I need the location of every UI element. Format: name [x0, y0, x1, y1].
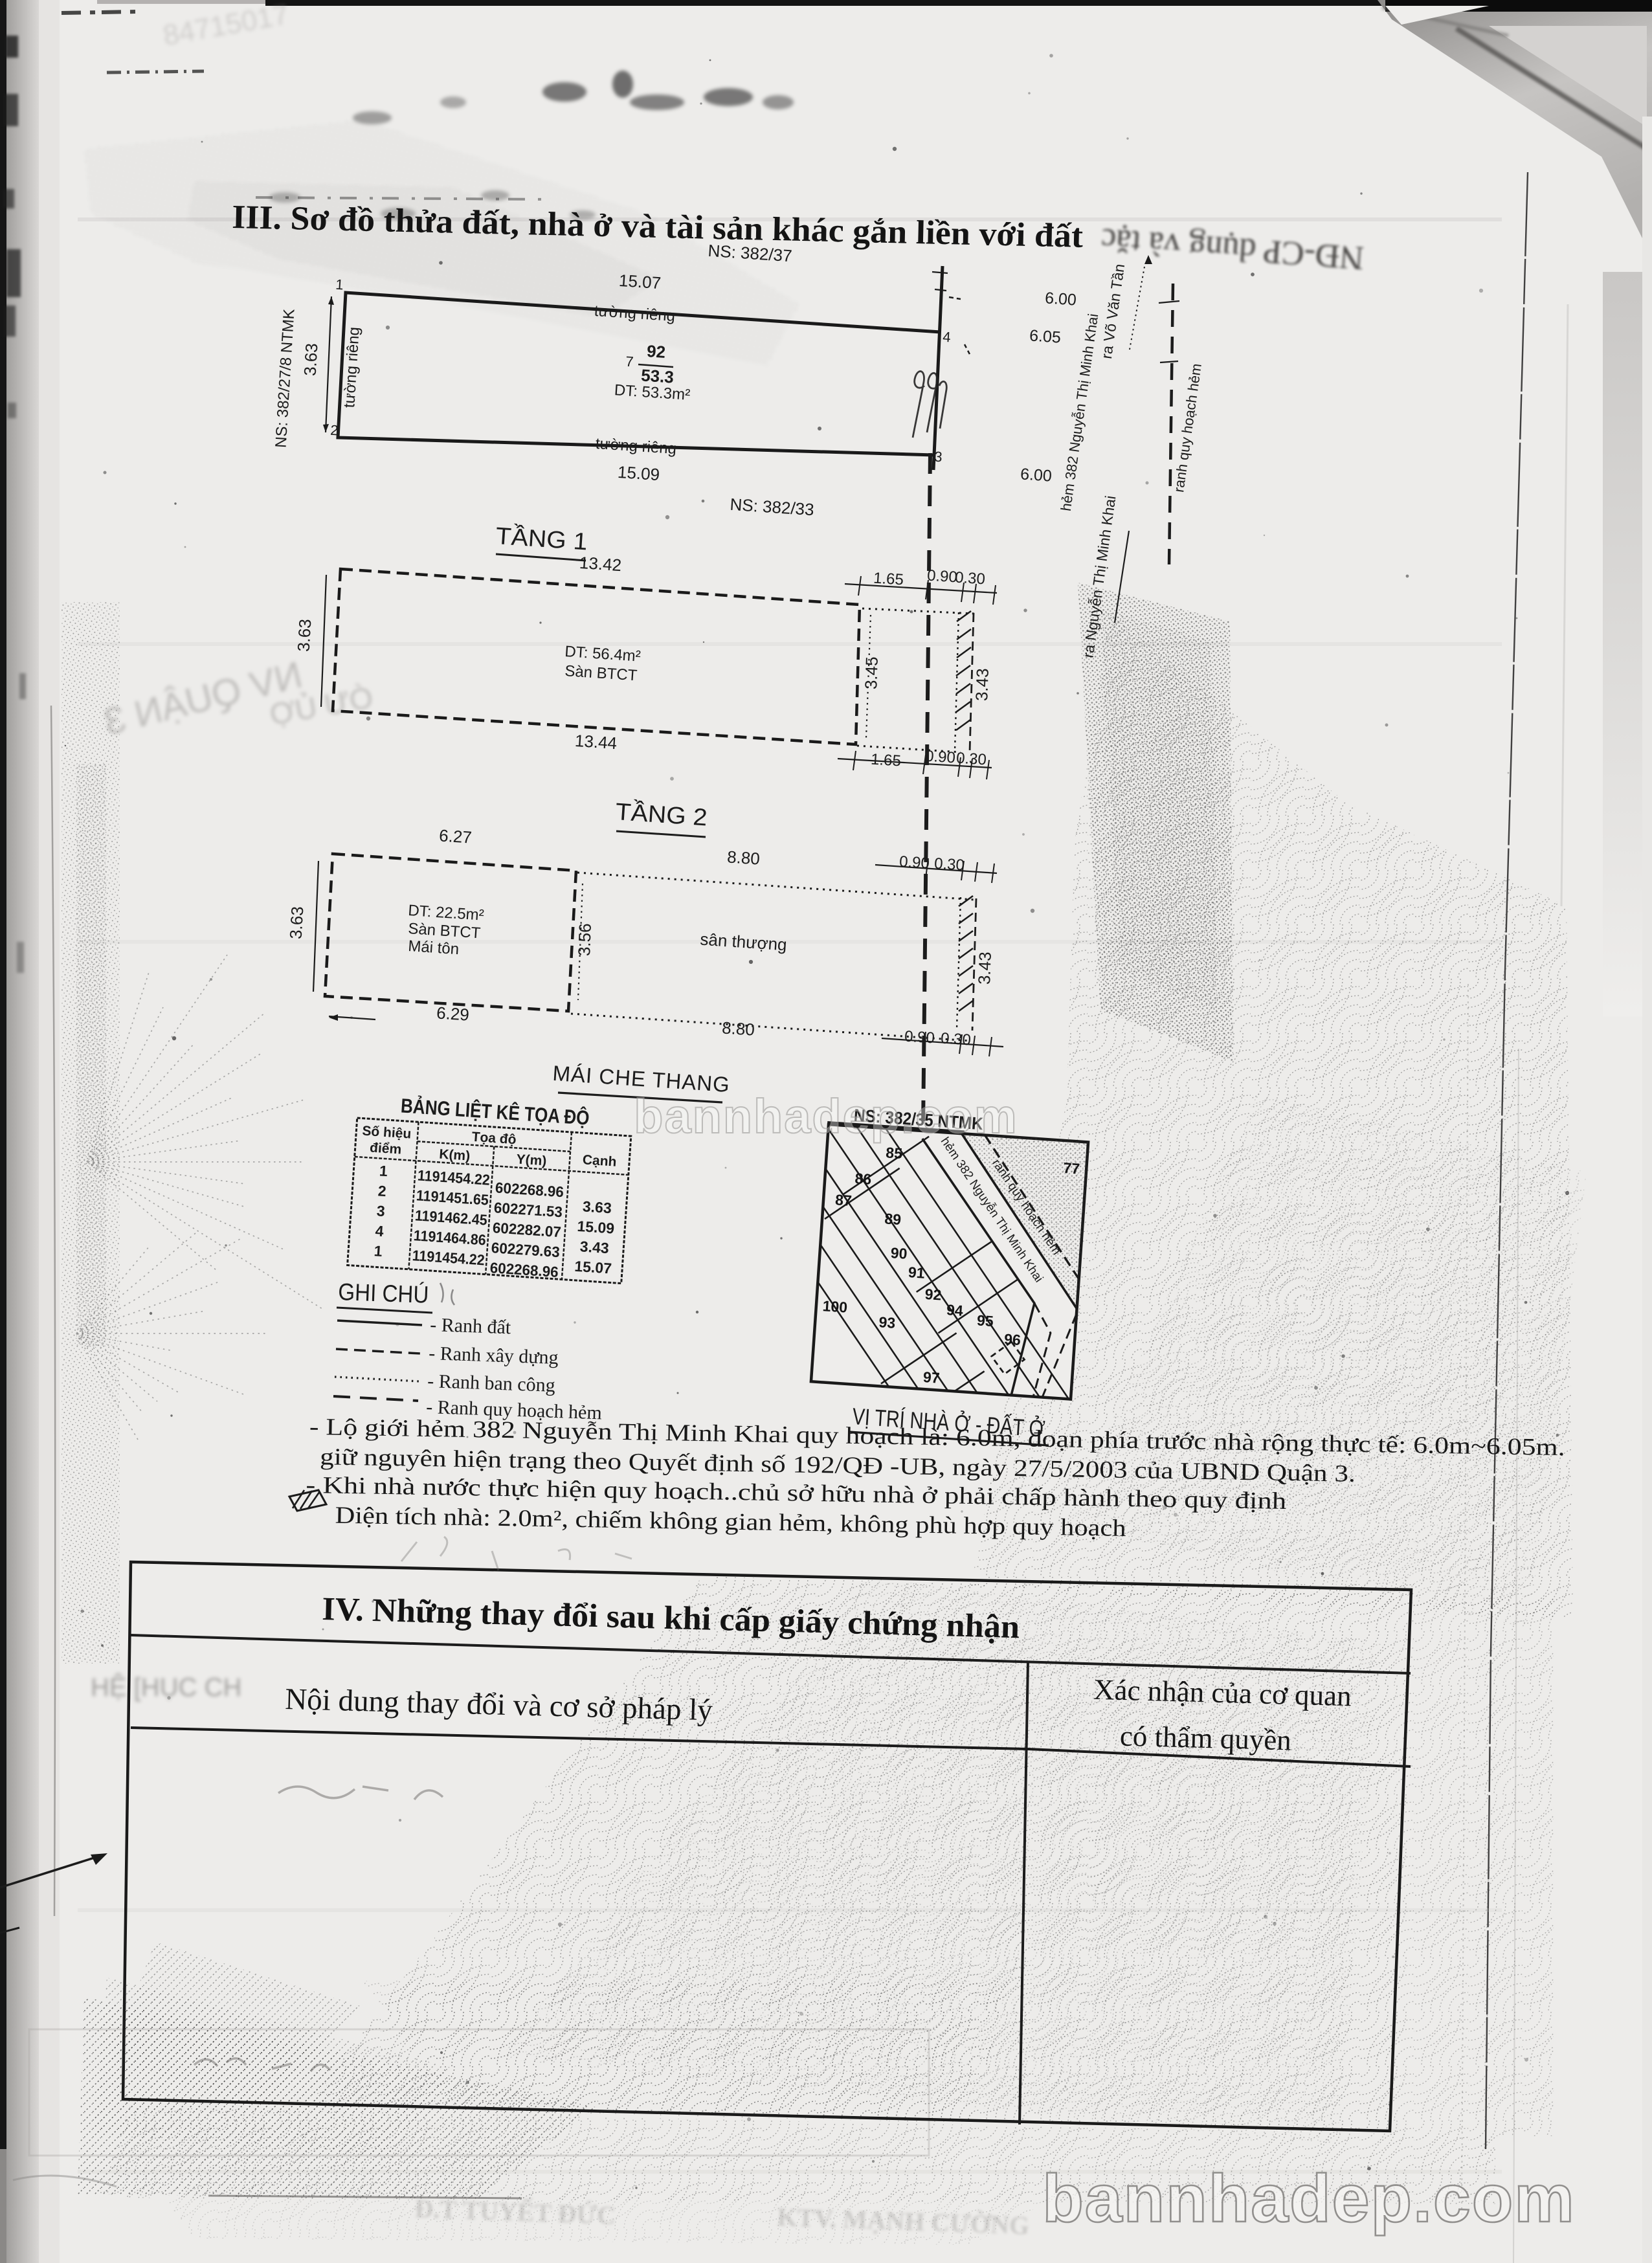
svg-text:3.63: 3.63 [300, 342, 321, 376]
svg-text:15.09: 15.09 [577, 1218, 615, 1237]
svg-text:bannhadep.com: bannhadep.com [634, 1089, 1018, 1143]
svg-text:Xác nhận của cơ quan: Xác nhận của cơ quan [1093, 1673, 1352, 1712]
svg-text:77: 77 [1063, 1159, 1080, 1177]
svg-text:3.43: 3.43 [972, 668, 992, 702]
svg-text:13.42: 13.42 [579, 553, 622, 575]
svg-text:6.27: 6.27 [438, 825, 472, 847]
svg-text:0.90: 0.90 [904, 1027, 935, 1047]
svg-text:4: 4 [375, 1222, 385, 1240]
svg-text:- Ranh xây dựng: - Ranh xây dựng [429, 1343, 559, 1368]
svg-text:8.80: 8.80 [721, 1018, 755, 1039]
svg-text:93: 93 [878, 1313, 896, 1332]
svg-text:3.63: 3.63 [582, 1198, 612, 1216]
svg-text:điểm: điểm [369, 1140, 401, 1157]
svg-text:15.09: 15.09 [617, 462, 660, 484]
svg-text:HỆ [HỤC CH: HỆ [HỤC CH [91, 1673, 241, 1702]
svg-text:0.90: 0.90 [899, 853, 930, 872]
svg-text:0.30: 0.30 [940, 1029, 971, 1049]
svg-text:86: 86 [854, 1170, 872, 1188]
svg-text:1: 1 [374, 1242, 383, 1260]
svg-text:3.43: 3.43 [579, 1238, 609, 1256]
svg-text:K(m): K(m) [439, 1147, 471, 1164]
svg-text:85: 85 [886, 1144, 904, 1162]
svg-text:1: 1 [379, 1162, 388, 1179]
svg-text:2: 2 [330, 422, 339, 439]
svg-text:6.05: 6.05 [1029, 326, 1061, 346]
svg-text:GHI CHÚ: GHI CHÚ [338, 1278, 429, 1308]
svg-text:0.30: 0.30 [933, 854, 965, 874]
svg-text:15.07: 15.07 [618, 271, 662, 293]
svg-text:92: 92 [646, 341, 666, 362]
svg-text:96: 96 [1003, 1330, 1021, 1348]
svg-text:15.07: 15.07 [574, 1258, 612, 1277]
svg-text:3: 3 [376, 1202, 385, 1220]
svg-text:2: 2 [377, 1182, 386, 1199]
svg-text:có thẩm quyền: có thẩm quyền [1119, 1720, 1291, 1757]
svg-text:6.00: 6.00 [1044, 289, 1077, 309]
svg-text:Cạnh: Cạnh [582, 1152, 617, 1169]
svg-text:91: 91 [908, 1264, 926, 1282]
svg-text:Mái tôn: Mái tôn [408, 937, 460, 958]
svg-text:3.43: 3.43 [974, 952, 995, 985]
svg-text:1.65: 1.65 [870, 750, 901, 770]
svg-text:1: 1 [335, 276, 344, 293]
svg-text:0.90: 0.90 [924, 747, 955, 766]
svg-text:6.00: 6.00 [1020, 465, 1052, 485]
svg-text:3.63: 3.63 [285, 906, 307, 939]
svg-text:3.56: 3.56 [574, 923, 595, 957]
svg-text:89: 89 [884, 1210, 902, 1228]
svg-text:- Ranh đất: - Ranh đất [430, 1314, 512, 1338]
svg-text:8.80: 8.80 [726, 847, 760, 868]
svg-text:3.63: 3.63 [293, 618, 315, 652]
svg-text:90: 90 [890, 1244, 908, 1262]
svg-text:0.90: 0.90 [926, 566, 957, 586]
svg-text:94: 94 [946, 1301, 964, 1319]
svg-text:- Ranh ban công: - Ranh ban công [427, 1370, 555, 1396]
svg-text:3.45: 3.45 [861, 656, 882, 690]
svg-text:92: 92 [924, 1286, 942, 1304]
svg-text:87: 87 [834, 1191, 852, 1209]
svg-text:7: 7 [625, 353, 634, 370]
svg-text:97: 97 [922, 1368, 940, 1387]
svg-text:95: 95 [976, 1311, 994, 1330]
svg-text:Y(m): Y(m) [516, 1152, 547, 1168]
svg-text:6.29: 6.29 [436, 1003, 469, 1024]
svg-text:4: 4 [943, 329, 952, 346]
svg-text:0.30: 0.30 [954, 568, 985, 588]
svg-text:0.30: 0.30 [955, 749, 987, 768]
svg-text:bannhadep.com: bannhadep.com [1042, 2161, 1575, 2236]
svg-text:3: 3 [934, 449, 943, 465]
svg-text:100: 100 [822, 1297, 848, 1316]
svg-text:Tọa độ: Tọa độ [471, 1130, 517, 1148]
svg-text:13.44: 13.44 [574, 731, 618, 753]
svg-text:1.65: 1.65 [873, 569, 904, 588]
